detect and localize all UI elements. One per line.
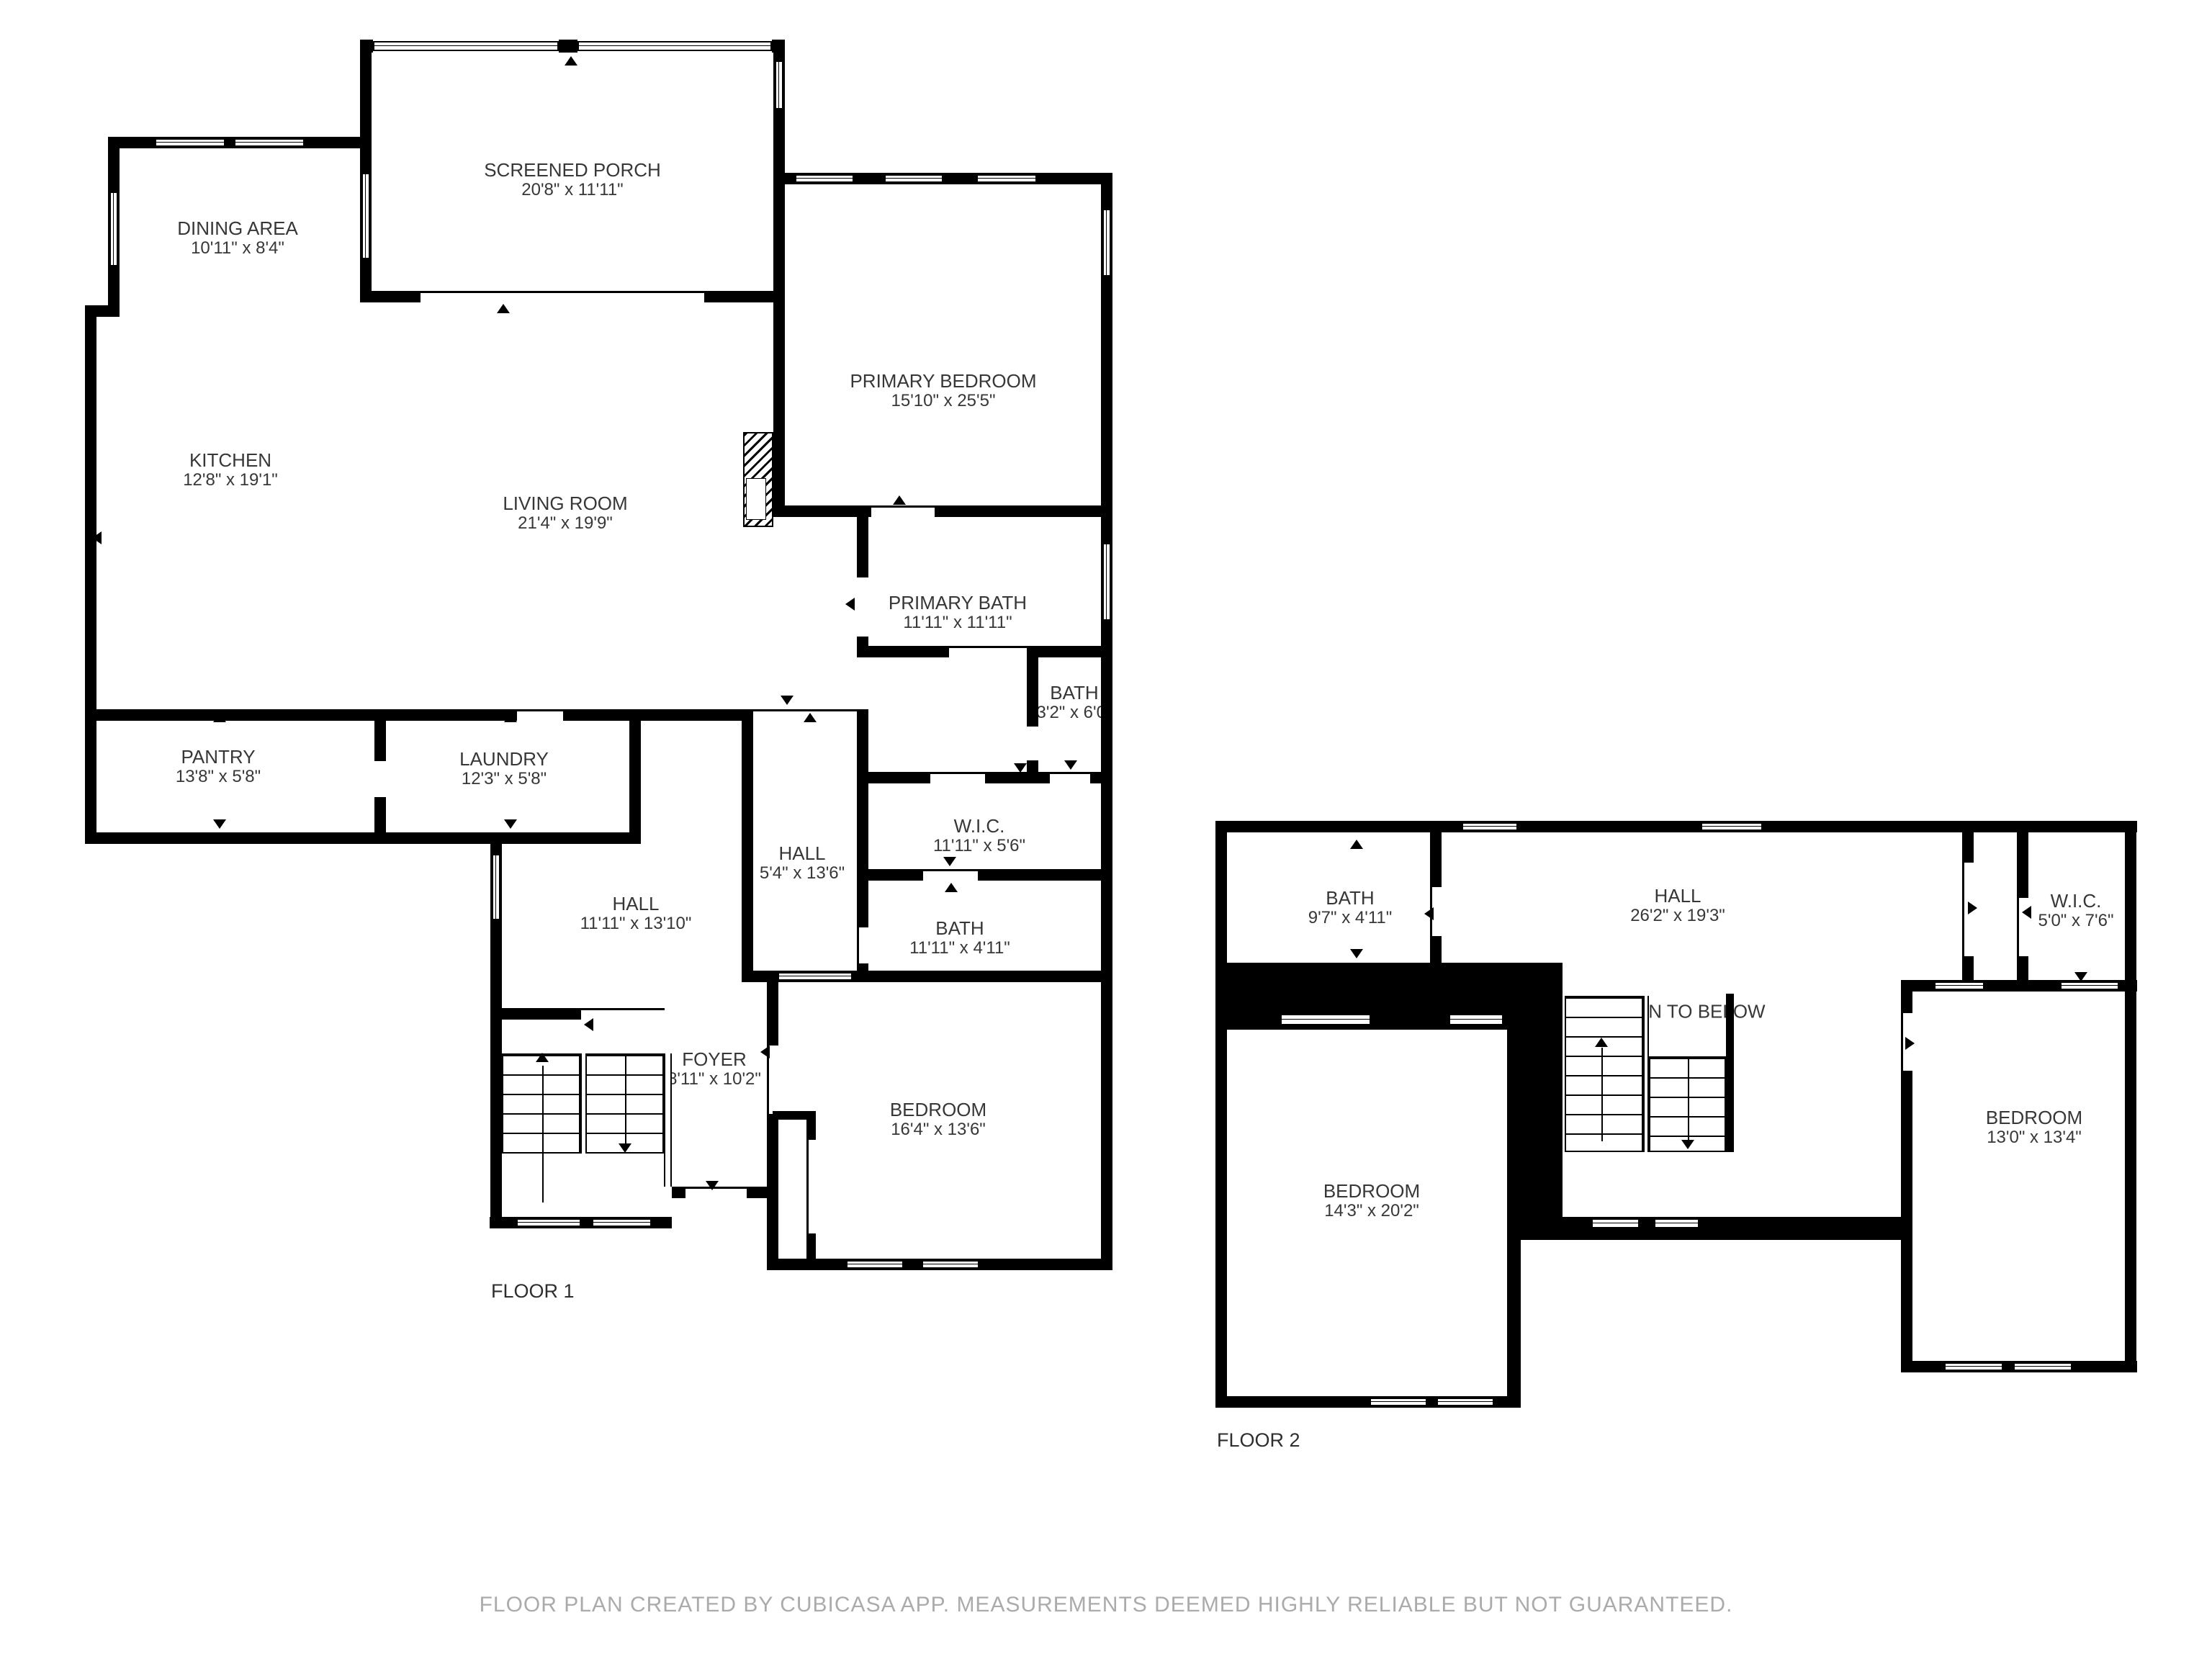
door-opening	[871, 505, 935, 508]
room-dims: 11'11" x 13'10"	[580, 914, 692, 934]
wall	[360, 40, 373, 53]
stair-arrow-icon	[619, 1143, 631, 1153]
wall	[2125, 821, 2136, 1372]
room-label-bedroom-f2-right: BEDROOM 13'0" x 13'4"	[1986, 1107, 2082, 1148]
room-dims: 15'10" x 25'5"	[850, 391, 1036, 411]
room-label-bath: BATH 11'11" x 4'11"	[909, 918, 1010, 958]
room-name: PRIMARY BEDROOM	[850, 371, 1036, 391]
door-arrow-icon	[1424, 907, 1434, 920]
room-name: HALL	[760, 843, 845, 863]
room-label-pantry: PANTRY 13'8" x 5'8"	[176, 747, 261, 787]
window	[1934, 981, 1984, 990]
wall	[1027, 657, 1038, 727]
wall	[559, 40, 577, 53]
door-arrow-icon	[845, 598, 855, 611]
door-arrow-icon	[893, 495, 906, 505]
wall	[1430, 821, 1442, 887]
window	[922, 1260, 979, 1269]
stair-arrow-icon	[536, 1053, 549, 1062]
window	[1280, 1014, 1371, 1025]
window	[775, 60, 783, 109]
window	[884, 174, 943, 183]
room-dims: 16'4" x 13'6"	[890, 1120, 986, 1140]
door-arrow-icon	[706, 1181, 719, 1190]
room-name: W.I.C.	[933, 816, 1025, 836]
stair-arrow-line	[1688, 1056, 1689, 1143]
room-dims: 21'4" x 19'9"	[503, 513, 627, 534]
stair-rail	[1643, 996, 1649, 1152]
window	[109, 192, 118, 266]
window	[1591, 1218, 1640, 1228]
room-dims: 5'0" x 7'6"	[2038, 911, 2114, 931]
floor1-tag: FLOOR 1	[491, 1280, 575, 1303]
window	[1437, 1398, 1494, 1406]
wall	[1726, 994, 1734, 1152]
room-dims: 11'11" x 5'6"	[933, 836, 1025, 856]
wall	[1090, 772, 1112, 783]
wall	[1507, 1217, 1521, 1408]
door-arrow-icon	[497, 304, 510, 313]
door-arrow-icon	[1968, 902, 1977, 914]
window	[1654, 1218, 1699, 1228]
door-opening	[2017, 898, 2019, 956]
room-dims: 8'11" x 10'2"	[667, 1069, 761, 1089]
window	[795, 174, 854, 183]
wall	[767, 1114, 778, 1259]
room-name: HALL	[1630, 886, 1725, 906]
room-name: DINING AREA	[177, 218, 298, 238]
room-name: BEDROOM	[1323, 1181, 1420, 1201]
room-name: BEDROOM	[890, 1100, 986, 1120]
stair-arrow-line	[1601, 1048, 1603, 1141]
window	[1370, 1398, 1427, 1406]
door-opening	[857, 927, 859, 963]
window	[492, 854, 500, 920]
door-opening	[930, 772, 985, 774]
wall	[772, 40, 785, 53]
door-arrow-icon	[504, 713, 517, 722]
window	[1102, 209, 1111, 276]
window	[234, 138, 305, 147]
room-label-living-room: LIVING ROOM 21'4" x 19'9"	[503, 493, 627, 534]
wall	[806, 1111, 816, 1140]
wall	[935, 505, 1112, 517]
room-dims: 13'8" x 5'8"	[176, 767, 261, 787]
wall	[1962, 832, 1974, 863]
room-label-wic: W.I.C. 11'11" x 5'6"	[933, 816, 1025, 856]
wall	[773, 184, 785, 517]
room-label-wic-f2: W.I.C. 5'0" x 7'6"	[2038, 891, 2114, 931]
wall	[857, 646, 949, 657]
wall	[492, 1008, 581, 1020]
window	[361, 173, 370, 259]
disclaimer-text: FLOOR PLAN CREATED BY CUBICASA APP. MEAS…	[0, 1593, 2212, 1617]
window	[1102, 543, 1111, 621]
wall	[985, 772, 1050, 783]
wall	[1101, 173, 1112, 1270]
wall	[85, 305, 96, 844]
window	[1449, 1014, 1503, 1025]
room-label-hall-small: HALL 5'4" x 13'6"	[760, 843, 845, 884]
room-dims: 14'3" x 20'2"	[1323, 1201, 1420, 1221]
door-opening	[1962, 863, 1964, 956]
door-arrow-icon	[92, 531, 102, 544]
door-arrow-icon	[943, 857, 956, 866]
wall	[1507, 1017, 1563, 1230]
staircase	[1565, 996, 1643, 1152]
wall	[374, 709, 386, 761]
stair-arrow-line	[542, 1066, 544, 1202]
door-opening	[949, 646, 1027, 648]
window	[2013, 1362, 2072, 1371]
room-label-screened-porch: SCREENED PORCH 20'8" x 11'11"	[484, 160, 661, 200]
door-opening	[1050, 772, 1090, 774]
wall	[1901, 980, 1912, 1013]
wall	[1215, 821, 1227, 1408]
room-label-bedroom-f1: BEDROOM 16'4" x 13'6"	[890, 1100, 986, 1140]
room-name: W.I.C.	[2038, 891, 2114, 911]
wall	[629, 709, 641, 844]
room-dims: 10'11" x 8'4"	[177, 238, 298, 258]
room-name: PANTRY	[176, 747, 261, 767]
floor-plan-canvas: SCREENED PORCH 20'8" x 11'11" DINING ARE…	[0, 0, 2212, 1659]
room-label-primary-bath: PRIMARY BATH 11'11" x 11'11"	[889, 593, 1027, 633]
door-opening	[806, 1140, 809, 1233]
room-dims: 20'8" x 11'11"	[484, 180, 661, 200]
window	[846, 1260, 904, 1269]
room-name: FOYER	[667, 1049, 761, 1069]
wall	[978, 869, 1112, 881]
room-label-hall-f2: HALL 26'2" x 19'3"	[1630, 886, 1725, 926]
room-dims: 11'11" x 4'11"	[909, 938, 1010, 958]
door-arrow-icon	[2022, 906, 2031, 919]
door-arrow-icon	[1471, 1005, 1484, 1015]
wall	[1027, 646, 1112, 657]
room-name: LAUNDRY	[459, 749, 549, 769]
room-label-bedroom-f2-left: BEDROOM 14'3" x 20'2"	[1323, 1181, 1420, 1221]
wall	[672, 1187, 685, 1198]
room-dims: 5'4" x 13'6"	[760, 863, 845, 884]
window	[577, 41, 772, 51]
door-opening	[923, 869, 978, 871]
wall	[1518, 1217, 1912, 1240]
stair-arrow-icon	[1681, 1140, 1694, 1149]
room-label-primary-bedroom: PRIMARY BEDROOM 15'10" x 25'5"	[850, 371, 1036, 411]
door-opening	[1901, 1013, 1903, 1071]
room-name: BATH	[1308, 888, 1393, 908]
window	[155, 138, 225, 147]
room-name: BEDROOM	[1986, 1107, 2082, 1128]
door-arrow-icon	[213, 713, 226, 722]
wall	[857, 963, 868, 982]
window	[1462, 822, 1518, 831]
room-label-dining-area: DINING AREA 10'11" x 8'4"	[177, 218, 298, 258]
wall	[563, 709, 742, 721]
wall	[742, 709, 753, 982]
window	[1701, 822, 1763, 831]
window	[373, 41, 559, 51]
room-label-kitchen: KITCHEN 12'8" x 19'1"	[183, 450, 278, 490]
fireplace-box	[746, 478, 766, 520]
door-arrow-icon	[504, 819, 517, 829]
door-arrow-icon	[945, 883, 958, 892]
floor2-tag: FLOOR 2	[1217, 1429, 1300, 1452]
door-arrow-icon	[1350, 840, 1363, 849]
room-name: HALL	[580, 894, 692, 914]
room-dims: 11'11" x 11'11"	[889, 613, 1027, 633]
window	[778, 972, 853, 981]
room-dims: 26'2" x 19'3"	[1630, 906, 1725, 926]
wall	[857, 709, 868, 927]
wall	[374, 797, 386, 844]
window	[976, 174, 1037, 183]
window	[1944, 1362, 2003, 1371]
door-arrow-icon	[1905, 1037, 1915, 1050]
door-opening	[421, 291, 704, 293]
room-dims: 12'3" x 5'8"	[459, 769, 549, 789]
wall	[806, 1233, 816, 1259]
wall	[360, 291, 421, 302]
window	[592, 1218, 652, 1227]
stair-arrow-icon	[1595, 1038, 1608, 1047]
wall	[747, 1187, 767, 1198]
room-name: PRIMARY BATH	[889, 593, 1027, 613]
door-arrow-icon	[804, 713, 817, 722]
wall	[1901, 1071, 1912, 1372]
door-arrow-icon	[213, 819, 226, 829]
door-arrow-icon	[1064, 760, 1077, 770]
door-opening	[517, 709, 563, 711]
wall	[85, 832, 641, 844]
door-arrow-icon	[565, 56, 577, 66]
window	[2060, 981, 2119, 990]
room-label-bath-f2: BATH 9'7" x 4'11"	[1308, 888, 1393, 928]
window	[516, 1218, 581, 1227]
door-arrow-icon	[2074, 972, 2087, 981]
wall	[773, 505, 871, 517]
room-label-hall-main: HALL 11'11" x 13'10"	[580, 894, 692, 934]
room-dims: 13'0" x 13'4"	[1986, 1128, 2082, 1148]
stair-arrow-line	[625, 1056, 626, 1146]
wall	[857, 517, 868, 577]
room-name: LIVING ROOM	[503, 493, 627, 513]
door-arrow-icon	[760, 1046, 770, 1058]
room-dims: 12'8" x 19'1"	[183, 470, 278, 490]
room-dims: 9'7" x 4'11"	[1308, 908, 1393, 928]
room-name: KITCHEN	[183, 450, 278, 470]
door-arrow-icon	[1014, 763, 1027, 773]
wall	[1215, 821, 2137, 832]
door-arrow-icon	[781, 696, 793, 705]
room-label-laundry: LAUNDRY 12'3" x 5'8"	[459, 749, 549, 789]
room-name: SCREENED PORCH	[484, 160, 661, 180]
stair-rail	[664, 1053, 672, 1187]
door-opening	[581, 1008, 665, 1010]
door-arrow-icon	[584, 1018, 593, 1031]
wall	[2017, 821, 2028, 898]
wall	[767, 982, 778, 1046]
door-opening	[753, 709, 857, 711]
room-name: BATH	[909, 918, 1010, 938]
door-arrow-icon	[1350, 949, 1363, 958]
staircase	[502, 1053, 580, 1154]
wall	[85, 709, 517, 721]
room-label-foyer: FOYER 8'11" x 10'2"	[667, 1049, 761, 1089]
